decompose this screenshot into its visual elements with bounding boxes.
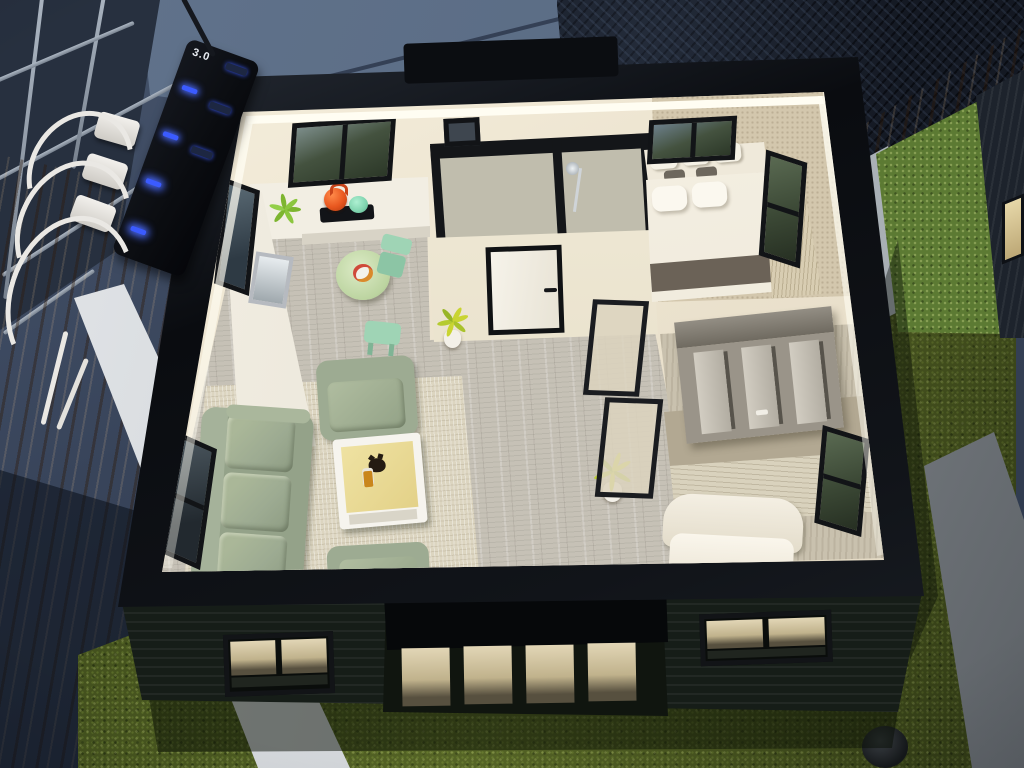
amber-bottle	[363, 471, 373, 488]
door-handle-icon	[544, 288, 557, 292]
led-indicator	[145, 178, 162, 188]
dining-stool	[362, 320, 401, 356]
armchair-cushion	[327, 377, 406, 432]
sofa-cushion	[224, 414, 296, 473]
hall-plant-small	[452, 318, 454, 320]
wall-panel-frame	[595, 397, 664, 498]
shower-head-icon	[566, 162, 579, 175]
patio-door-pane	[525, 645, 574, 704]
bedroom-top-window	[647, 116, 737, 165]
lounge-right-window	[814, 425, 869, 537]
photo-scene: 3.0	[0, 0, 1024, 768]
led-indicator	[162, 131, 179, 141]
facade-window-left	[223, 631, 335, 697]
facade-window-right	[699, 610, 833, 667]
kitchen-top-window	[288, 116, 396, 188]
window-pane	[706, 619, 763, 649]
roof-handle	[403, 36, 618, 83]
window-sill	[707, 647, 825, 659]
window-pane	[230, 640, 276, 676]
bed-pillow	[691, 181, 728, 208]
window-mullion	[823, 473, 861, 489]
stool-leg	[367, 343, 373, 355]
wall-panel-frame	[583, 299, 649, 396]
chair-seat	[376, 251, 407, 279]
kettle-handle	[330, 183, 348, 196]
coffee-table-top	[341, 441, 418, 513]
window-mullion	[690, 123, 697, 157]
counter-plant	[284, 206, 286, 208]
mint-pot	[349, 196, 368, 213]
usb-port	[225, 62, 248, 76]
patio-door-pane	[587, 643, 636, 702]
sofa-cushion	[220, 472, 292, 533]
wardrobe	[674, 306, 844, 444]
armchair-top	[315, 355, 418, 442]
window-pane	[768, 617, 825, 647]
window-pane	[281, 638, 327, 674]
window-mullion	[767, 202, 799, 217]
window-sill	[231, 674, 327, 687]
coffee-table	[332, 432, 428, 529]
led-indicator	[181, 85, 198, 95]
bedroom-right-window	[759, 149, 808, 268]
patio-door-pane	[463, 646, 512, 705]
led-indicator	[130, 225, 147, 235]
bed-pillow	[651, 185, 688, 212]
usb-port	[190, 146, 213, 160]
bathroom-window	[443, 117, 480, 147]
hall-door	[485, 245, 564, 336]
second-model-lit-window	[1002, 194, 1024, 265]
food-plate	[353, 264, 373, 282]
patio-door-pane	[401, 648, 450, 707]
stool-leg	[388, 344, 394, 356]
window-mullion	[339, 125, 348, 180]
kitchen-sink	[248, 251, 294, 308]
usb-port	[209, 101, 232, 115]
